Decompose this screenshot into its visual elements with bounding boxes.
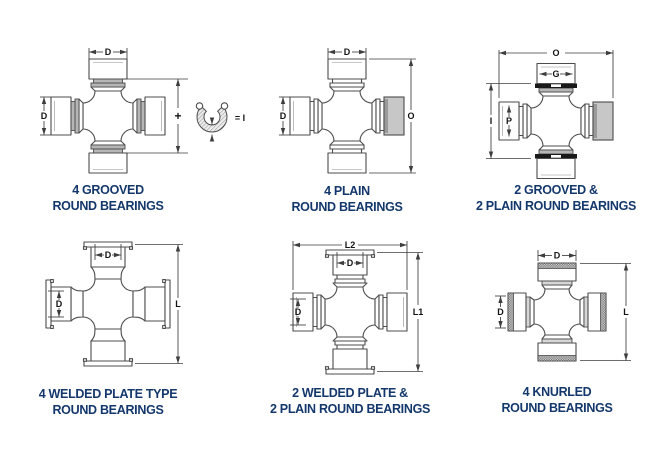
caption-line: 4 PLAIN: [324, 184, 370, 198]
cross-body: [293, 250, 407, 374]
caption-line: ROUND BEARINGS: [501, 401, 612, 415]
bearing-cap-right: [581, 102, 613, 140]
dim-label-i: I: [490, 116, 493, 126]
diagram-4-welded-plate-round-bearings: D D L 4 WELDED PLATE TYPE ROUND BEARINGS: [39, 242, 183, 417]
bearing-cap-top: [326, 250, 375, 287]
dim-label-l: L: [175, 299, 181, 309]
bearing-cap-bottom: [89, 141, 127, 173]
dim-label-o: O: [552, 48, 559, 58]
dim-label-d-top: D: [347, 258, 354, 268]
dim-label-d-top: D: [344, 47, 351, 57]
dim-label-d-left: D: [41, 111, 48, 121]
bearing-cap-left: [46, 280, 83, 329]
snap-ring: = I: [196, 103, 245, 140]
bearing-cap-top: [89, 59, 127, 91]
bearing-cap-top: [538, 263, 576, 289]
dim-label-equals-i: = I: [235, 113, 245, 123]
diagram-4-plain-round-bearings: D D O 4 PLAIN ROUND BEARINGS: [279, 47, 416, 214]
caption-line: ROUND BEARINGS: [291, 200, 402, 214]
dim-label-l2: L2: [345, 240, 356, 250]
bearing-cap-left: [51, 97, 83, 135]
caption-line: 2 PLAIN ROUND BEARINGS: [476, 199, 636, 213]
dim-label-o: O: [407, 111, 414, 121]
caption-line: 2 WELDED PLATE &: [292, 386, 408, 400]
dim-label-g: G: [552, 69, 559, 79]
caption-line: 2 PLAIN ROUND BEARINGS: [270, 402, 430, 416]
dim-label-d-left: D: [295, 307, 302, 317]
cross-body: [51, 59, 165, 173]
bearing-cap-left: [499, 102, 531, 140]
bearing-cap-bottom: [538, 335, 576, 361]
dim-label-d-left: D: [280, 111, 287, 121]
cross-body: [46, 242, 170, 366]
bearing-cap-bottom: [535, 146, 577, 179]
bearing-cap-right: [133, 280, 170, 329]
cross-body: [290, 59, 404, 173]
bearing-cap-bottom: [326, 337, 375, 374]
bearing-cap-left: [290, 97, 322, 135]
dim-label-plus: +: [174, 109, 181, 123]
bearing-cap-bottom: [328, 141, 366, 173]
diagram-canvas: D D + = I 4 GROOVED ROUND: [0, 0, 670, 450]
caption-line: ROUND BEARINGS: [52, 403, 163, 417]
diagram-4-grooved-round-bearings: D D + = I 4 GROOVED ROUND: [40, 47, 245, 213]
cross-body: [499, 64, 613, 179]
bearing-cap-top: [84, 242, 133, 279]
dim-label-l: L: [623, 307, 629, 317]
dim-label-d-left: D: [56, 299, 63, 309]
caption-line: 2 GROOVED &: [514, 183, 598, 197]
diagram-4-knurled-round-bearings: D D L 4 KNURLED ROUND BEARINGS: [495, 250, 631, 415]
bearing-types-diagram-sheet: D D + = I 4 GROOVED ROUND: [0, 0, 670, 450]
bearing-cap-top: [328, 59, 366, 91]
dim-label-d-left: D: [497, 307, 504, 317]
caption-line: 4 GROOVED: [72, 183, 144, 197]
caption-line: 4 WELDED PLATE TYPE: [39, 387, 178, 401]
dim-label-l1: L1: [413, 307, 424, 317]
dim-label-d-top: D: [105, 47, 112, 57]
dim-label-p: P: [506, 116, 512, 126]
caption-line: 4 KNURLED: [523, 385, 592, 399]
dim-label-d-top: D: [554, 251, 561, 261]
diagram-2-grooved-2-plain-round-bearings: O G I P 2 GROOVED & 2 PLAIN ROUND BEARIN…: [476, 48, 636, 213]
bearing-cap-left: [508, 293, 534, 331]
caption-line: ROUND BEARINGS: [52, 199, 163, 213]
cross-body: [508, 263, 606, 361]
bearing-cap-right: [133, 97, 165, 135]
bearing-cap-right: [580, 293, 606, 331]
bearing-cap-bottom: [84, 329, 133, 366]
dim-label-d-top: D: [105, 250, 112, 260]
diagram-2-welded-plate-2-plain-round-bearings: L2 D D L1 2 WELDED PLATE & 2 PLAIN ROUND…: [270, 240, 430, 416]
bearing-cap-right: [375, 293, 407, 331]
bearing-cap-right: [372, 97, 404, 135]
